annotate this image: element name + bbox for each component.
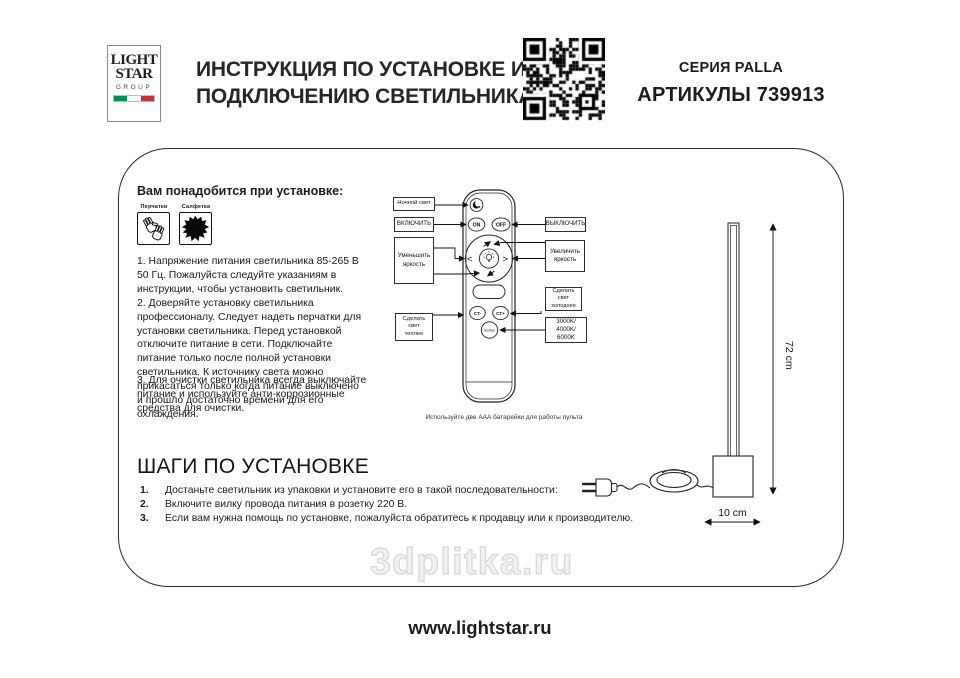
night-light-button: [470, 199, 483, 212]
document-title: ИНСТРУКЦИЯ ПО УСТАНОВКЕ И ПОДКЛЮЧЕНИЮ СВ…: [196, 57, 533, 111]
step-number: 2.: [140, 498, 165, 512]
height-dimension: 72 cm: [773, 224, 795, 494]
callout-night-light: Ночной свет: [393, 197, 435, 211]
series-block: СЕРИЯ PALLA АРТИКУЛЫ 739913: [622, 60, 840, 107]
height-label: 72 cm: [783, 341, 795, 370]
svg-text:Section: Section: [484, 328, 495, 332]
svg-text:OFF: OFF: [496, 223, 506, 229]
callout-increase-brightness: Увеличить яркость: [545, 240, 585, 272]
series-label: СЕРИЯ PALLA: [622, 60, 840, 76]
step-item-3: 3. Если вам нужна помощь по установке, п…: [140, 512, 830, 526]
step-item-2: 2. Включите вилку провода питания в розе…: [140, 498, 830, 512]
section-button: Section: [481, 322, 497, 338]
gloves-icon: [137, 212, 170, 245]
pill-button: [473, 285, 505, 299]
note-cleaning: 3. Для очистки светильника всегда выключ…: [137, 374, 367, 415]
step-number: 3.: [140, 512, 165, 526]
lamp-diagram: 72 cm 10 cm: [580, 180, 820, 530]
callout-cooler-light: Сделать свет холоднее: [545, 287, 582, 311]
requirement-napkin: Салфетка: [179, 204, 213, 245]
watermark: 3dplitka.ru: [0, 541, 944, 583]
callout-turn-on: ВКЛЮЧИТЬ: [394, 217, 434, 232]
lightstar-logo: LIGHT STAR GROUP: [107, 45, 161, 122]
website-url: www.lightstar.ru: [0, 617, 960, 639]
requirement-gloves: Перчатки: [137, 204, 171, 245]
italian-flag-icon: [113, 95, 155, 102]
note-power: 1. Напряжение питания светильника 85-265…: [137, 255, 367, 296]
requirements-heading: Вам понадобится при установке:: [137, 184, 343, 198]
step-text: Достаньте светильник из упаковки и устан…: [165, 484, 558, 498]
step-text: Если вам нужна помощь по установке, пожа…: [165, 512, 633, 526]
on-button: ON: [468, 218, 485, 231]
step-text: Включите вилку провода питания в розетку…: [165, 498, 407, 512]
article-number: АРТИКУЛЫ 739913: [622, 84, 840, 107]
logo-text-group: GROUP: [108, 84, 160, 91]
svg-text:ON: ON: [473, 223, 481, 229]
logo-text-star: STAR: [108, 67, 160, 81]
svg-text:CT+: CT+: [496, 311, 505, 316]
lamp-drawing: 72 cm 10 cm: [580, 180, 820, 530]
logo-text-light: LIGHT: [108, 53, 160, 67]
left-chevron: <: [467, 254, 473, 265]
step-number: 1.: [140, 484, 165, 498]
requirements-icons: Перчатки: [137, 204, 213, 245]
gloves-label: Перчатки: [137, 204, 171, 210]
right-chevron: >: [503, 254, 509, 265]
qr-code: [523, 38, 605, 122]
off-button: OFF: [492, 218, 510, 231]
callout-dim-brightness: Уменьшить яркость: [394, 237, 434, 284]
napkin-label: Салфетка: [179, 204, 213, 210]
callout-warmer-light: Сделать свет теплее: [395, 313, 433, 341]
svg-text:CT-: CT-: [474, 311, 482, 316]
napkin-icon: [179, 212, 212, 245]
ct-plus-button: CT+: [493, 306, 509, 319]
steps-heading: ШАГИ ПО УСТАНОВКЕ: [137, 455, 369, 479]
ct-minus-button: CT-: [470, 306, 486, 319]
step-item-1: 1. Достаньте светильник из упаковки и ус…: [140, 484, 830, 498]
lamp-pole: [728, 223, 739, 456]
